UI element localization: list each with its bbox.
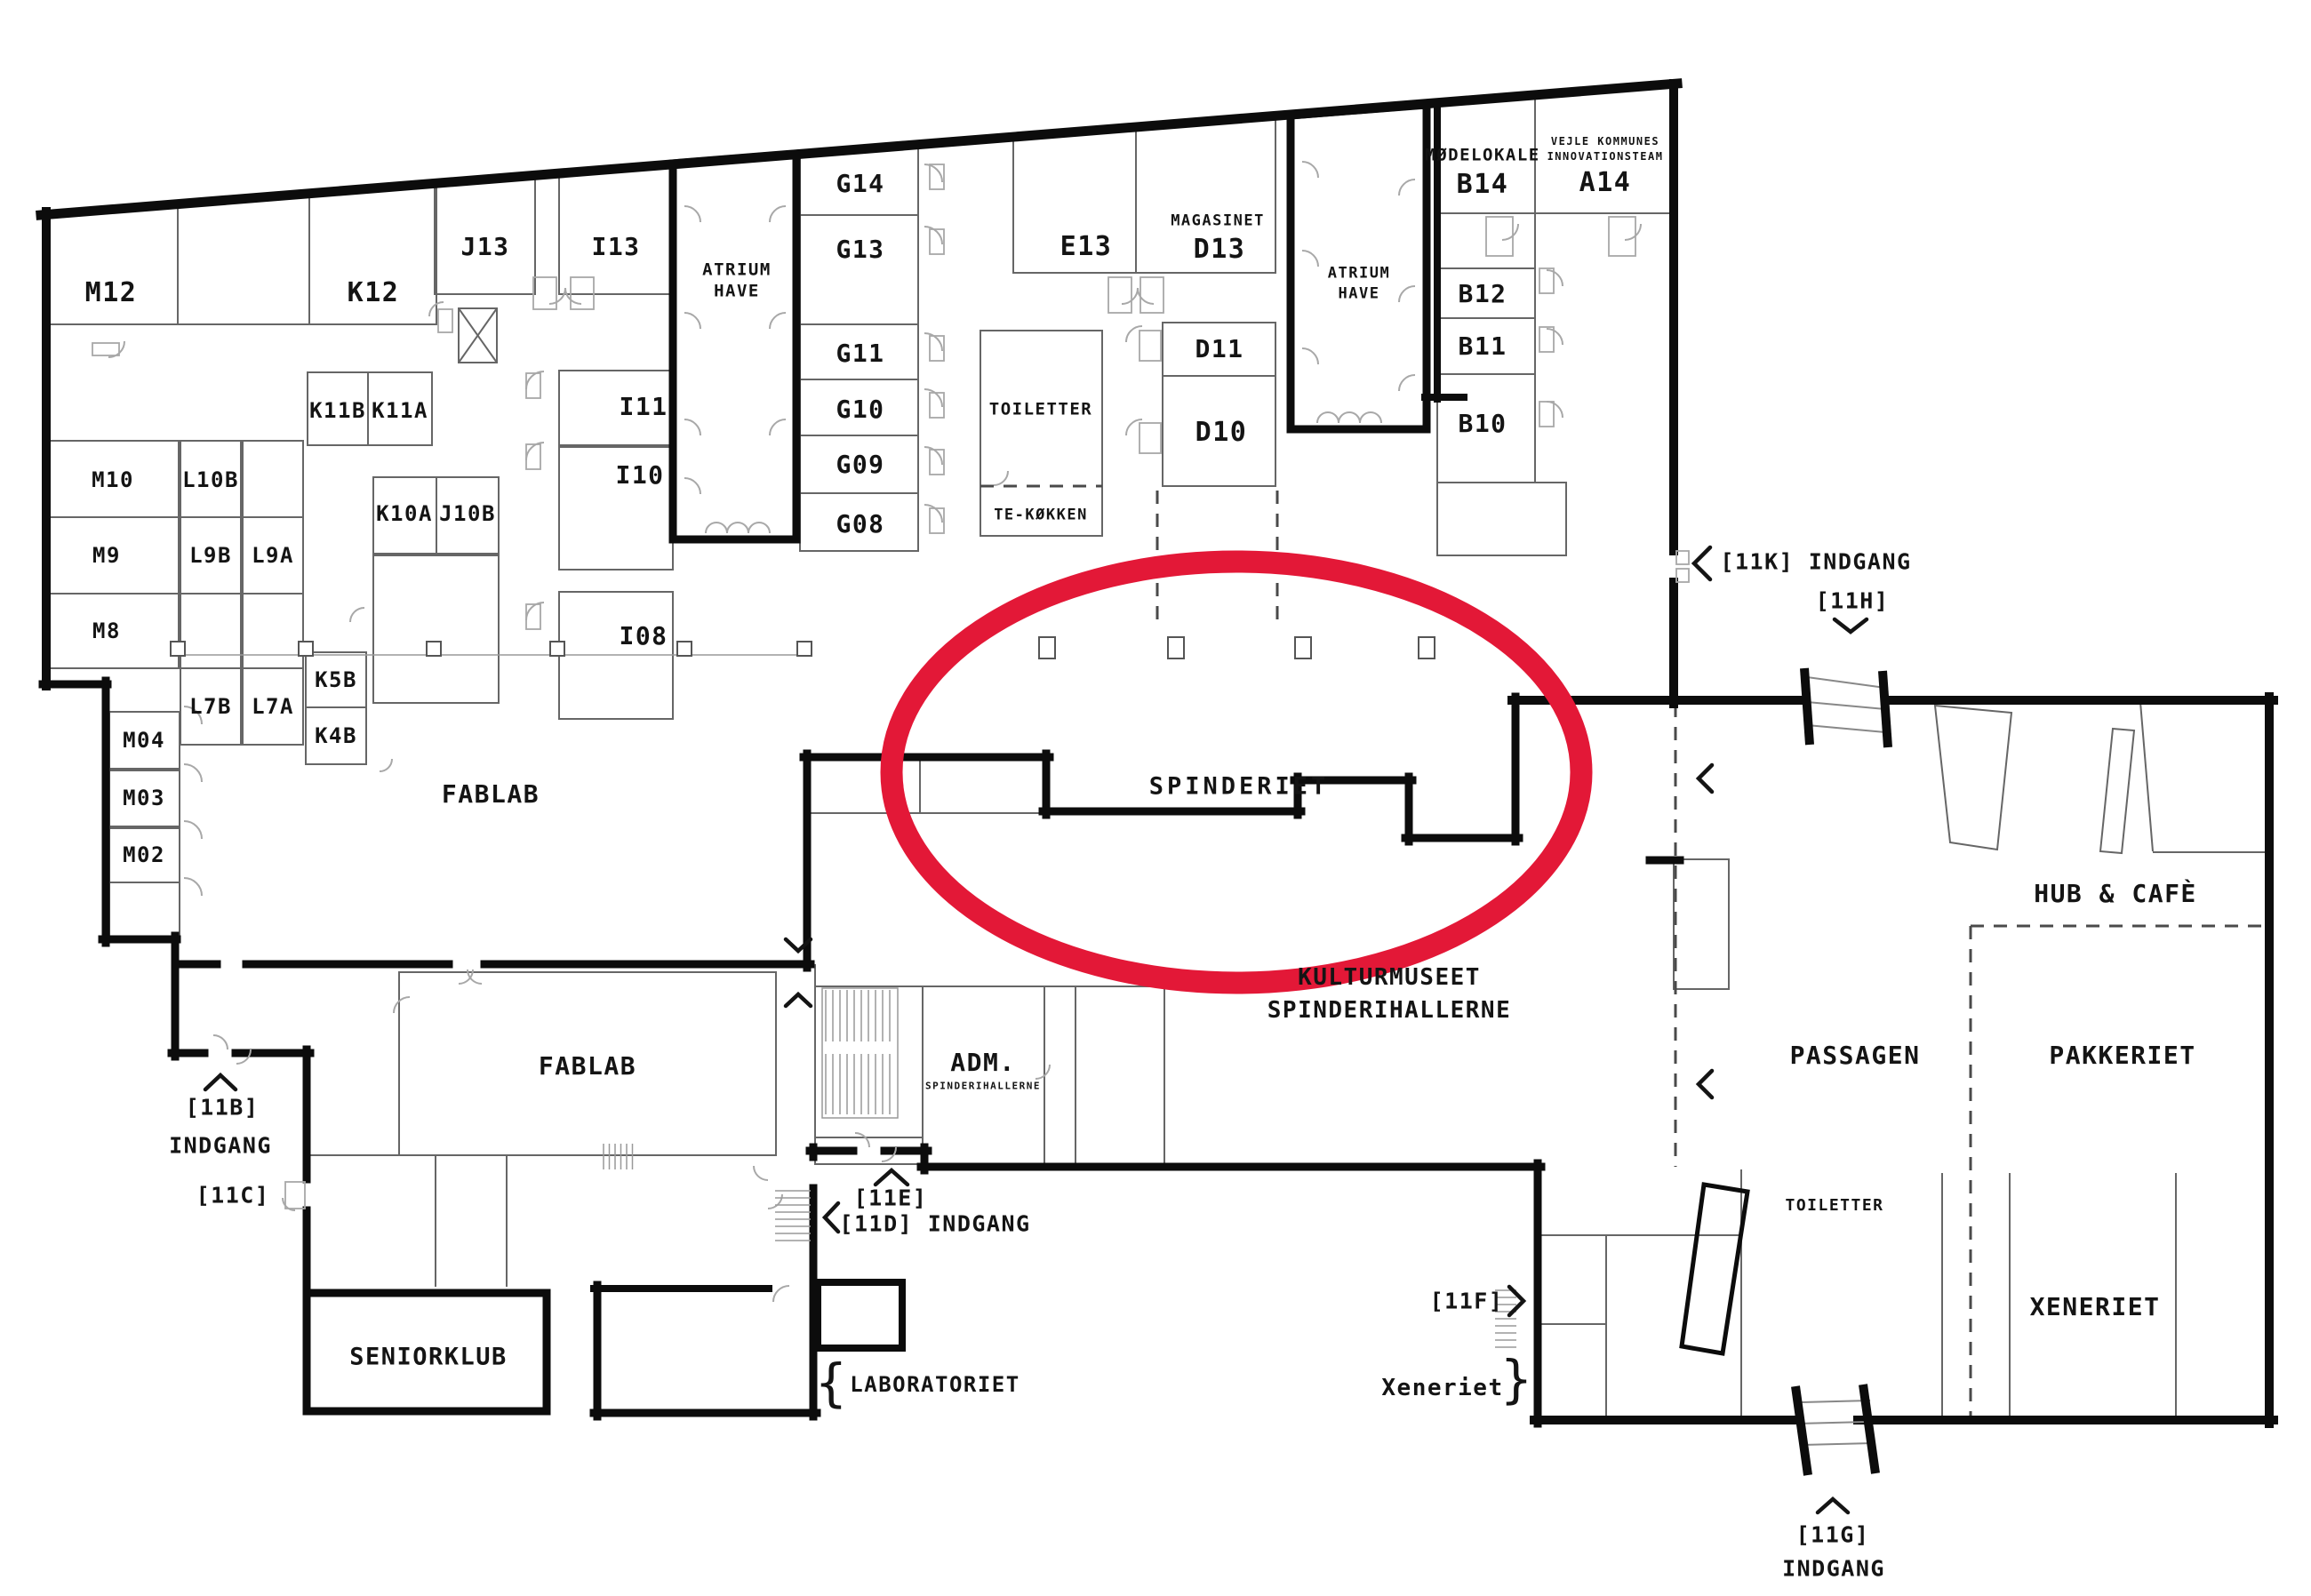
label-vejle-kommunes: VEJLE KOMMUNES [1551,136,1659,147]
room-unlabeled-1 [178,193,309,324]
door-arc-icon [754,1166,768,1180]
label-room-e13: E13 [1060,234,1113,260]
door-arc-icon [526,602,544,620]
label-room-m9: M9 [92,545,121,566]
door-frame-icon [1676,569,1689,582]
chevron-down-11h-icon [1835,619,1867,632]
door-arc-icon [924,505,942,523]
column-square [1039,637,1055,658]
label-room-l10b: L10B [182,469,239,491]
label-entrance-11c: [11C] [196,1185,270,1207]
door-arc-icon [684,419,700,435]
toiletter-lower-block [1682,1185,1747,1353]
label-magasinet: MAGASINET [1171,214,1265,229]
label-te-kokken: TE-KØKKEN [994,508,1088,523]
label-room-m10: M10 [92,469,134,491]
label-pakkeriet: PAKKERIET [2049,1043,2195,1068]
door-arc-icon [994,471,1008,485]
label-adm: ADM. [950,1050,1015,1075]
door-arc-icon [184,878,202,896]
door-frame-icon [526,373,540,398]
door-arc-icon [380,759,392,771]
label-room-l9b: L9B [189,545,232,566]
room-unlabeled-4 [243,594,303,668]
door-frame-icon [1140,423,1161,453]
door-frame-icon [1140,331,1161,361]
door-frame-icon [1676,551,1689,564]
door-frame-icon [438,309,452,332]
label-room-m02: M02 [123,844,165,866]
column-square [797,642,812,656]
column-square [1168,637,1184,658]
door-frame-icon [1539,268,1554,293]
label-xeneriet-small: Xeneriet [1381,1377,1503,1400]
chevron-right-11f-icon [1509,1287,1523,1315]
label-room-g13: G13 [836,237,884,262]
door-frame-icon [285,1182,305,1209]
label-xeneriet: XENERIET [2030,1295,2161,1320]
door-arc-icon [526,371,544,389]
label-kulturmuseet-line2: SPINDERIHALLERNE [1267,999,1511,1022]
label-room-b14: B14 [1457,172,1509,198]
label-entrance-11e: [11E] [854,1187,928,1209]
room-storage [373,555,499,703]
label-entrance-11g-indgang: INDGANG [1782,1558,1885,1580]
door-arc-icon [1399,180,1415,196]
door-frame-icon [1108,277,1132,313]
door-arc-icon [1399,286,1415,302]
label-passagen: PASSAGEN [1790,1043,1921,1068]
door-arc-icon [526,443,544,460]
door-arc-icon [768,1194,782,1209]
label-room-a14: A14 [1579,170,1632,196]
label-entrance-11f: [11F] [1430,1290,1504,1313]
scallop-icon [727,523,748,533]
column-square [299,642,313,656]
label-room-g09: G09 [836,452,884,477]
label-spinderiet: SPINDERIET [1149,775,1330,799]
ramp-2 [2100,729,2134,853]
dashed-boundaries [980,486,2269,1418]
label-laboratoriet: LABORATORIET [850,1374,1020,1395]
chevron-left-11k-icon [1694,547,1710,579]
door-arc-icon [924,164,942,182]
door-frame-icon [526,604,540,629]
atrium-have-1-walls [673,154,796,539]
label-atrium-have-1-line2: HAVE [714,283,760,300]
label-room-m03: M03 [123,787,165,809]
room-laboratoriet-walls [818,1282,902,1348]
label-atrium-have-1-line1: ATRIUM [702,262,772,279]
label-room-d10: D10 [1195,419,1248,446]
label-room-b11: B11 [1458,334,1507,359]
door-arc-icon [1625,224,1641,240]
label-entrance-11g: [11G] [1796,1524,1870,1546]
scallop-icon [1360,412,1381,423]
door-arc-icon [1302,162,1318,178]
label-adm-sub: SPINDERIHALLERNE [925,1081,1041,1091]
column-square [427,642,441,656]
label-room-g10: G10 [836,397,884,422]
label-room-m12: M12 [85,280,138,307]
door-arc-icon [1547,329,1563,345]
column-square [1419,637,1435,658]
door-arc-icon [1399,375,1415,391]
floor-plan: M12K12J13I13K11BK11AM10L10BM9L9BL9AM8L7B… [0,0,2311,1596]
door-frame-icon [1609,217,1635,256]
door-arc-icon [1547,402,1563,418]
room-g13-outline [800,215,918,324]
door-frame-icon [1140,277,1163,313]
door-arc-icon [213,1035,228,1049]
label-room-k10a: K10A [376,503,433,524]
door-arc-icon [565,288,581,304]
door-arc-icon [549,288,565,304]
label-room-k12: K12 [348,280,400,307]
chevron-up-hall-icon [786,994,811,1006]
door-arc-icon [394,997,410,1013]
door-arc-icon [350,608,364,622]
label-toiletter-upper: TOILETTER [989,402,1092,419]
door-arc-icon [1547,270,1563,286]
label-room-g14: G14 [836,172,884,196]
label-modelokale: MØDELOKALE [1425,148,1539,164]
door-arc-icon [924,389,942,407]
door-frame-icon [1539,327,1554,352]
label-room-j13: J13 [460,235,509,259]
label-brace-laboratoriet: { [816,1357,847,1408]
label-room-g08: G08 [836,512,884,537]
chevron-up-11e-icon [876,1170,908,1185]
label-fablab-lower: FABLAB [539,1054,636,1079]
door-arc-icon [770,206,786,222]
label-brace-xeneriet: } [1501,1353,1532,1405]
label-room-g11: G11 [836,341,884,366]
label-room-k11b: K11B [309,400,366,421]
label-room-m04: M04 [123,730,165,751]
label-room-d13: D13 [1194,236,1246,263]
label-room-i11: I11 [619,395,668,419]
label-room-l9a: L9A [252,545,294,566]
room-unlabeled-2 [243,441,303,517]
door-arc-icon [1302,251,1318,267]
label-room-i10: I10 [615,463,664,488]
label-room-m8: M8 [92,620,121,642]
door-arc-icon [773,1286,789,1302]
passage-column [1674,859,1729,989]
room-unlabeled-3 [180,594,241,668]
door-arc-icon [1302,348,1318,364]
label-seniorklub: SENIORKLUB [349,1345,508,1369]
chevron-up-11g-icon [1818,1499,1848,1512]
column-square [171,642,185,656]
column-square [550,642,564,656]
label-innovationsteam: INNOVATIONSTEAM [1547,151,1664,162]
door-frame-icon [1486,217,1513,256]
label-room-d11: D11 [1195,337,1243,362]
chevron-left-passage-1-icon [1699,765,1712,792]
ramp-1 [1935,706,2011,850]
scallop-icon [1339,412,1360,423]
door-frame-icon [92,343,119,355]
door-arc-icon [1036,1065,1050,1079]
chevron-left-11d-icon [825,1203,838,1232]
label-room-b10: B10 [1458,411,1507,436]
vestibule-11h [1804,668,1888,747]
label-entrance-11h: [11H] [1816,590,1890,612]
door-arc-icon [1502,224,1518,240]
column-square [1295,637,1311,658]
scallop-icon [1317,412,1339,423]
scallop-icon [748,523,770,533]
door-arc-icon [184,764,202,782]
label-kulturmuseet-line1: KULTURMUSEET [1298,966,1481,989]
scallop-icon [706,523,727,533]
door-frame-icon [533,277,556,309]
chevron-left-passage-2-icon [1699,1071,1712,1097]
label-entrance-11b: [11B] [186,1097,260,1119]
label-toiletter-lower: TOILETTER [1785,1198,1883,1214]
label-atrium-have-2-line1: ATRIUM [1328,267,1390,282]
label-room-k11a: K11A [372,400,428,421]
door-arc-icon [1122,288,1138,304]
label-room-i13: I13 [591,235,640,259]
label-room-j10b: J10B [439,503,496,524]
door-arc-icon [684,206,700,222]
room-i13-outline [559,164,673,294]
label-entrance-11b-indgang: INDGANG [169,1135,272,1157]
label-fablab-upper: FABLAB [442,782,540,807]
room-toiletter-upper-outline [980,331,1102,536]
label-room-l7a: L7A [252,696,294,717]
door-arc-icon [770,313,786,329]
door-frame-icon [1539,402,1554,427]
chevron-up-11b-icon [205,1075,236,1089]
label-room-l7b: L7B [189,696,232,717]
label-room-i08: I08 [619,624,668,649]
label-entrance-11k: [11K] INDGANG [1720,551,1911,573]
room-unlabeled-5 [1437,483,1566,555]
label-room-b12: B12 [1458,282,1507,307]
label-entrance-11d-indgang: [11D] INDGANG [839,1213,1030,1235]
vestibule-11g [1795,1385,1875,1475]
door-arc-icon [855,1133,869,1147]
door-arc-icon [770,419,786,435]
label-room-k5b: K5B [315,669,357,690]
label-atrium-have-2-line2: HAVE [1339,287,1380,302]
door-frame-icon [526,444,540,469]
label-room-k4b: K4B [315,725,357,746]
room-unlabeled-6 [109,882,180,939]
door-arc-icon [184,821,202,839]
label-hub-cafe: HUB & CAFÈ [2034,882,2197,906]
door-arc-icon [684,313,700,329]
column-square [677,642,692,656]
door-arc-icon [684,478,700,494]
